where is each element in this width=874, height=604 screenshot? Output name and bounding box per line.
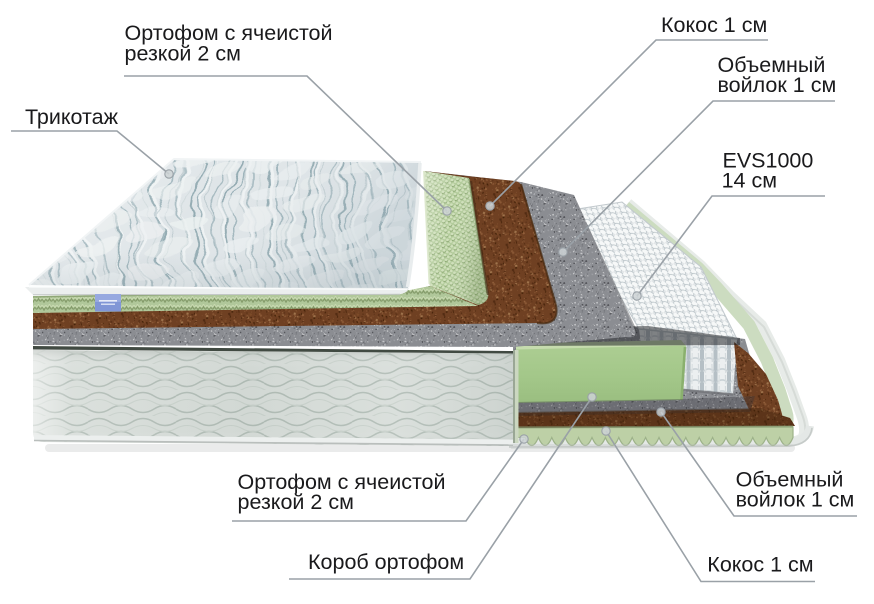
svg-text:Кокос 1 см: Кокос 1 см bbox=[661, 13, 767, 37]
svg-text:резкой 2 см: резкой 2 см bbox=[238, 490, 354, 514]
svg-text:Короб ортофом: Короб ортофом bbox=[308, 550, 464, 574]
svg-text:Кокос 1 см: Кокос 1 см bbox=[707, 553, 813, 577]
svg-text:резкой 2 см: резкой 2 см bbox=[125, 41, 241, 65]
svg-text:Трикотаж: Трикотаж bbox=[25, 105, 119, 129]
svg-text:войлок 1 см: войлок 1 см bbox=[718, 73, 837, 97]
svg-text:войлок 1 см: войлок 1 см bbox=[736, 488, 855, 512]
svg-text:14 см: 14 см bbox=[722, 168, 777, 192]
